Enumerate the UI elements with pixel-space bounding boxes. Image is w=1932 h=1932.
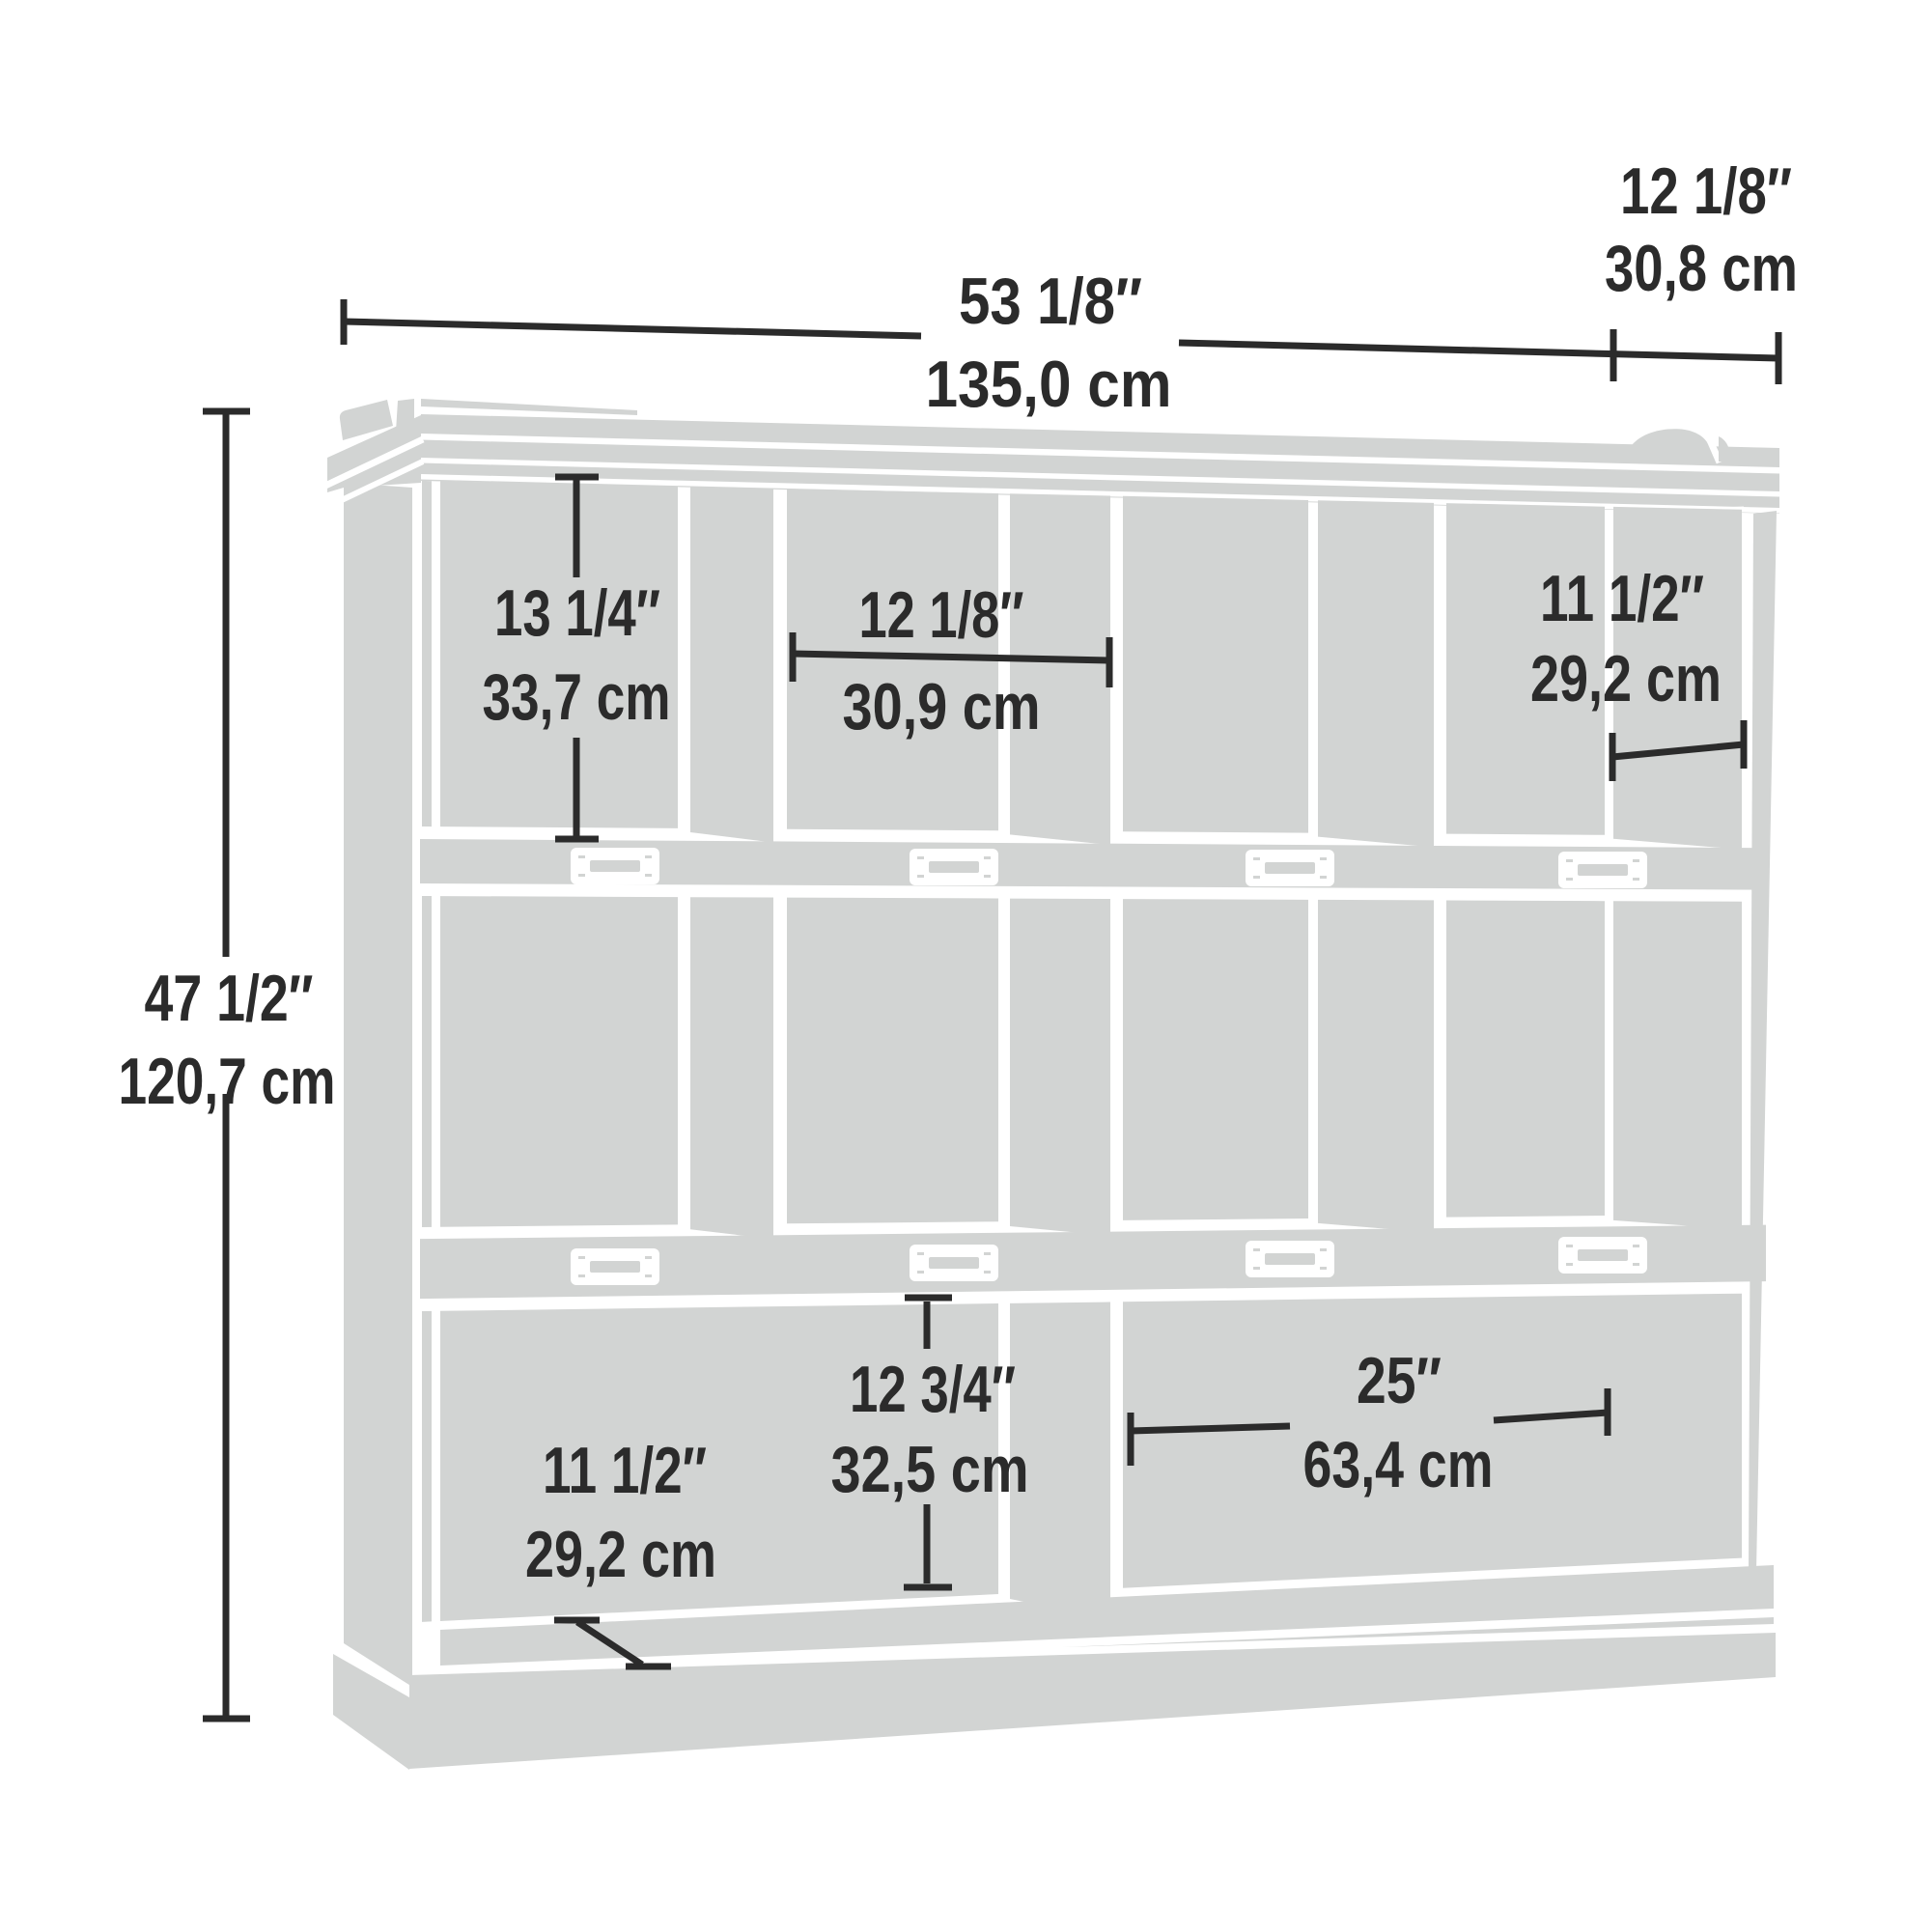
svg-text:63,4 cm: 63,4 cm	[1303, 1428, 1494, 1501]
svg-text:30,9 cm: 30,9 cm	[843, 670, 1041, 743]
svg-text:11 1/2″: 11 1/2″	[1540, 562, 1704, 635]
svg-text:53 1/8″: 53 1/8″	[959, 265, 1142, 338]
svg-text:12 1/8″: 12 1/8″	[859, 578, 1024, 652]
svg-text:12 1/8″: 12 1/8″	[1620, 154, 1792, 228]
svg-text:120,7 cm: 120,7 cm	[119, 1045, 336, 1118]
svg-text:135,0 cm: 135,0 cm	[926, 348, 1172, 421]
svg-text:32,5 cm: 32,5 cm	[831, 1433, 1029, 1506]
svg-text:29,2 cm: 29,2 cm	[1530, 642, 1722, 715]
svg-text:13 1/4″: 13 1/4″	[494, 576, 660, 650]
svg-text:29,2 cm: 29,2 cm	[525, 1518, 716, 1591]
svg-text:25″: 25″	[1357, 1344, 1442, 1417]
svg-text:11 1/2″: 11 1/2″	[543, 1434, 707, 1507]
svg-text:33,7 cm: 33,7 cm	[483, 660, 671, 734]
svg-text:47 1/2″: 47 1/2″	[145, 962, 314, 1035]
svg-text:30,8 cm: 30,8 cm	[1605, 232, 1798, 305]
svg-text:12 3/4″: 12 3/4″	[850, 1353, 1016, 1426]
